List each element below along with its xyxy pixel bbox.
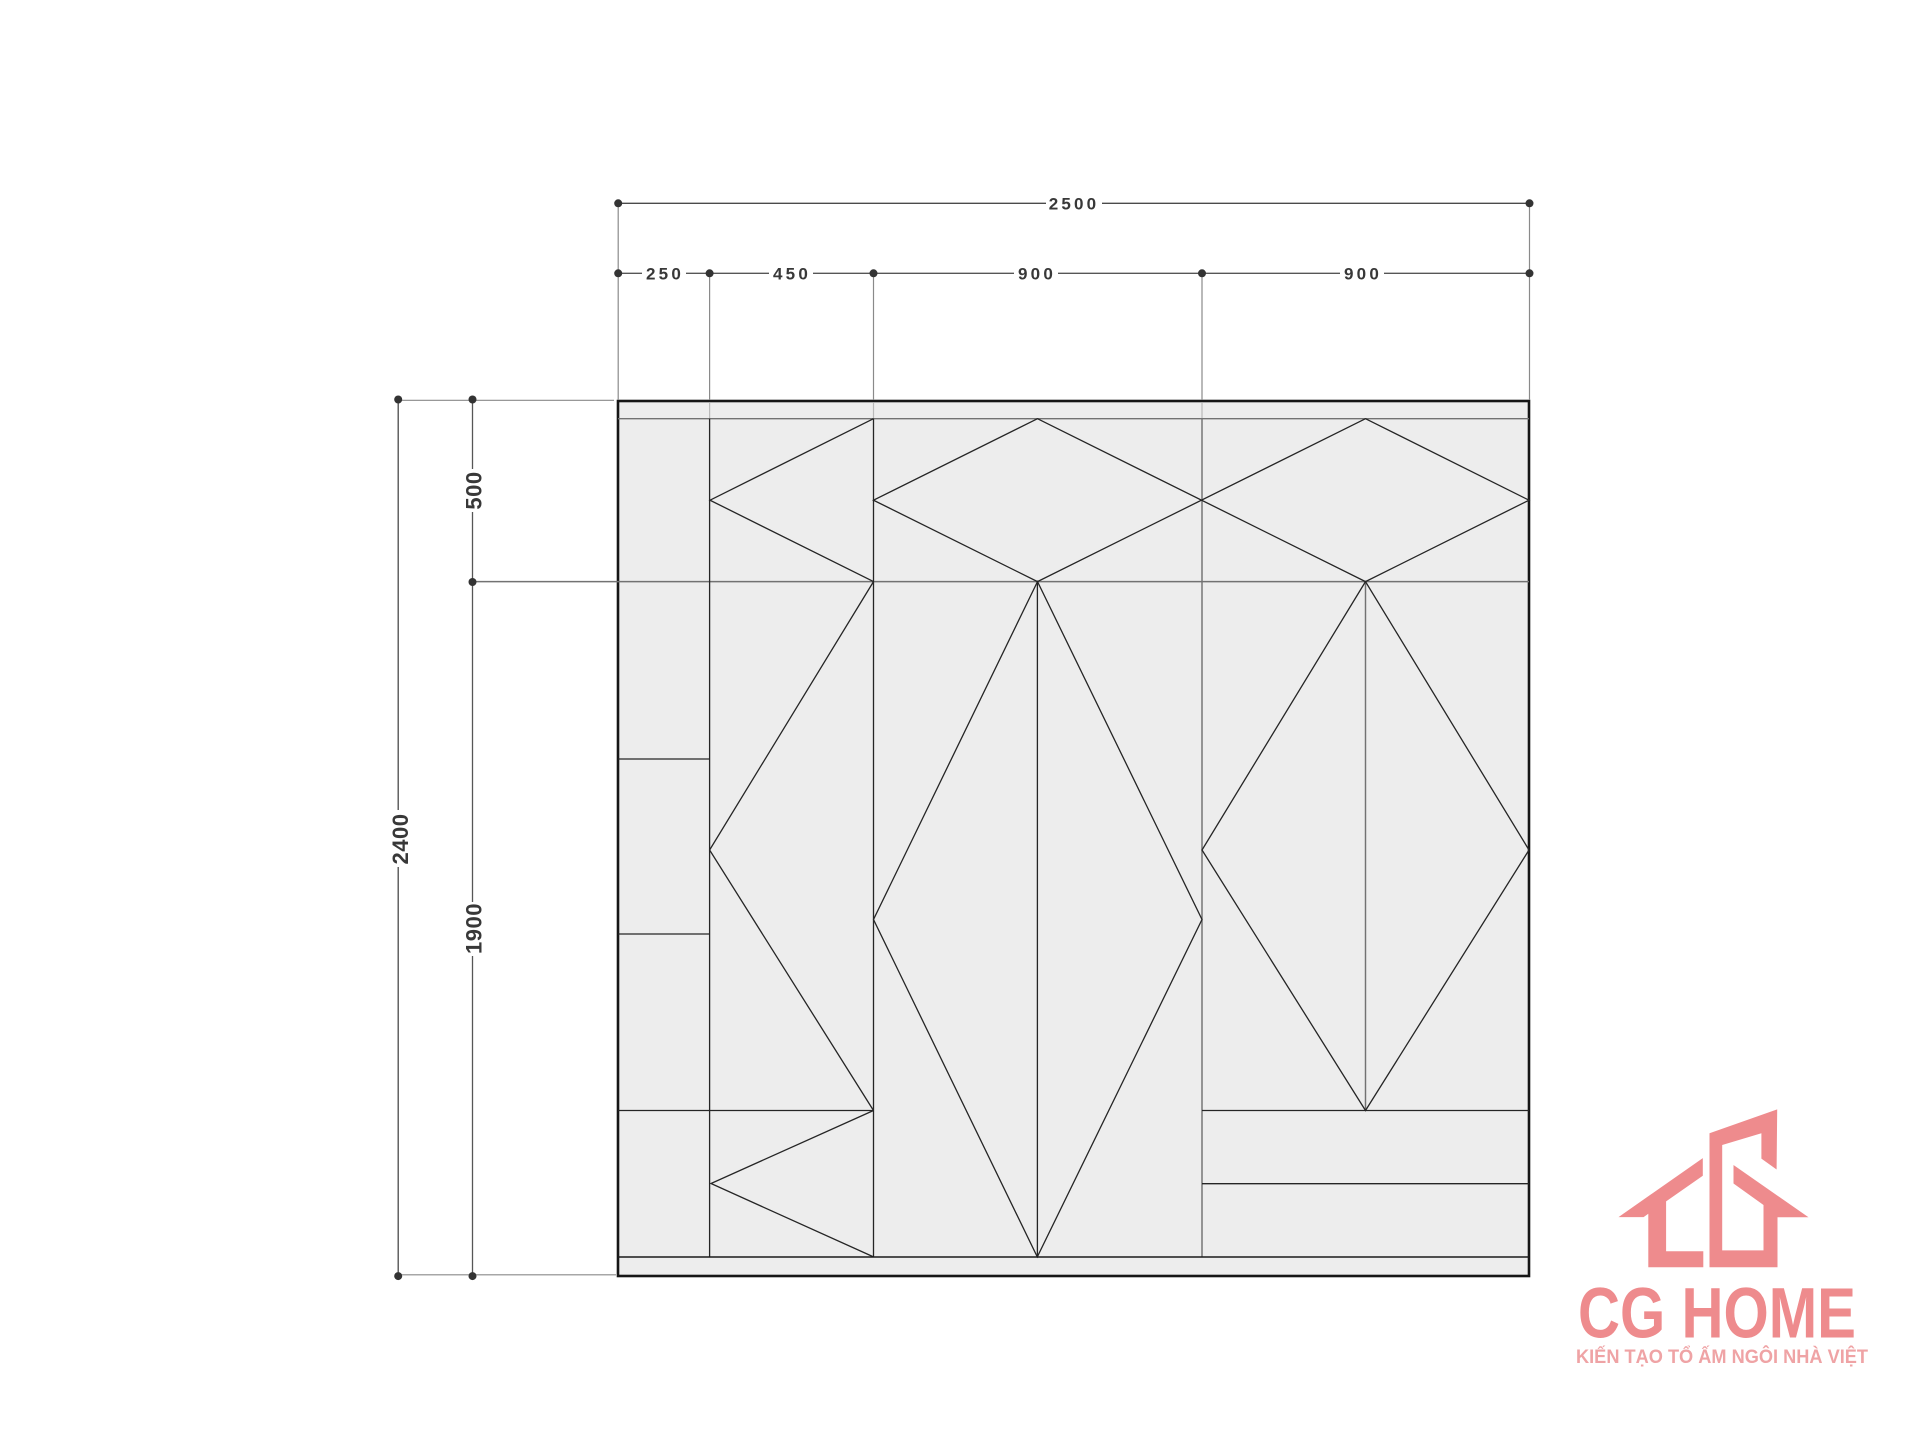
svg-text:KIẾN TẠO TỔ ẤM NGÔI NHÀ VIỆT: KIẾN TẠO TỔ ẤM NGÔI NHÀ VIỆT (1576, 1346, 1868, 1368)
svg-text:2500: 2500 (1049, 195, 1100, 214)
svg-text:250: 250 (646, 265, 684, 284)
svg-text:CG HOME: CG HOME (1578, 1275, 1856, 1354)
svg-text:500: 500 (461, 471, 486, 509)
svg-text:2400: 2400 (388, 814, 413, 865)
svg-text:450: 450 (773, 265, 811, 284)
svg-text:1900: 1900 (461, 903, 486, 954)
svg-text:900: 900 (1018, 265, 1056, 284)
svg-text:900: 900 (1344, 265, 1382, 284)
